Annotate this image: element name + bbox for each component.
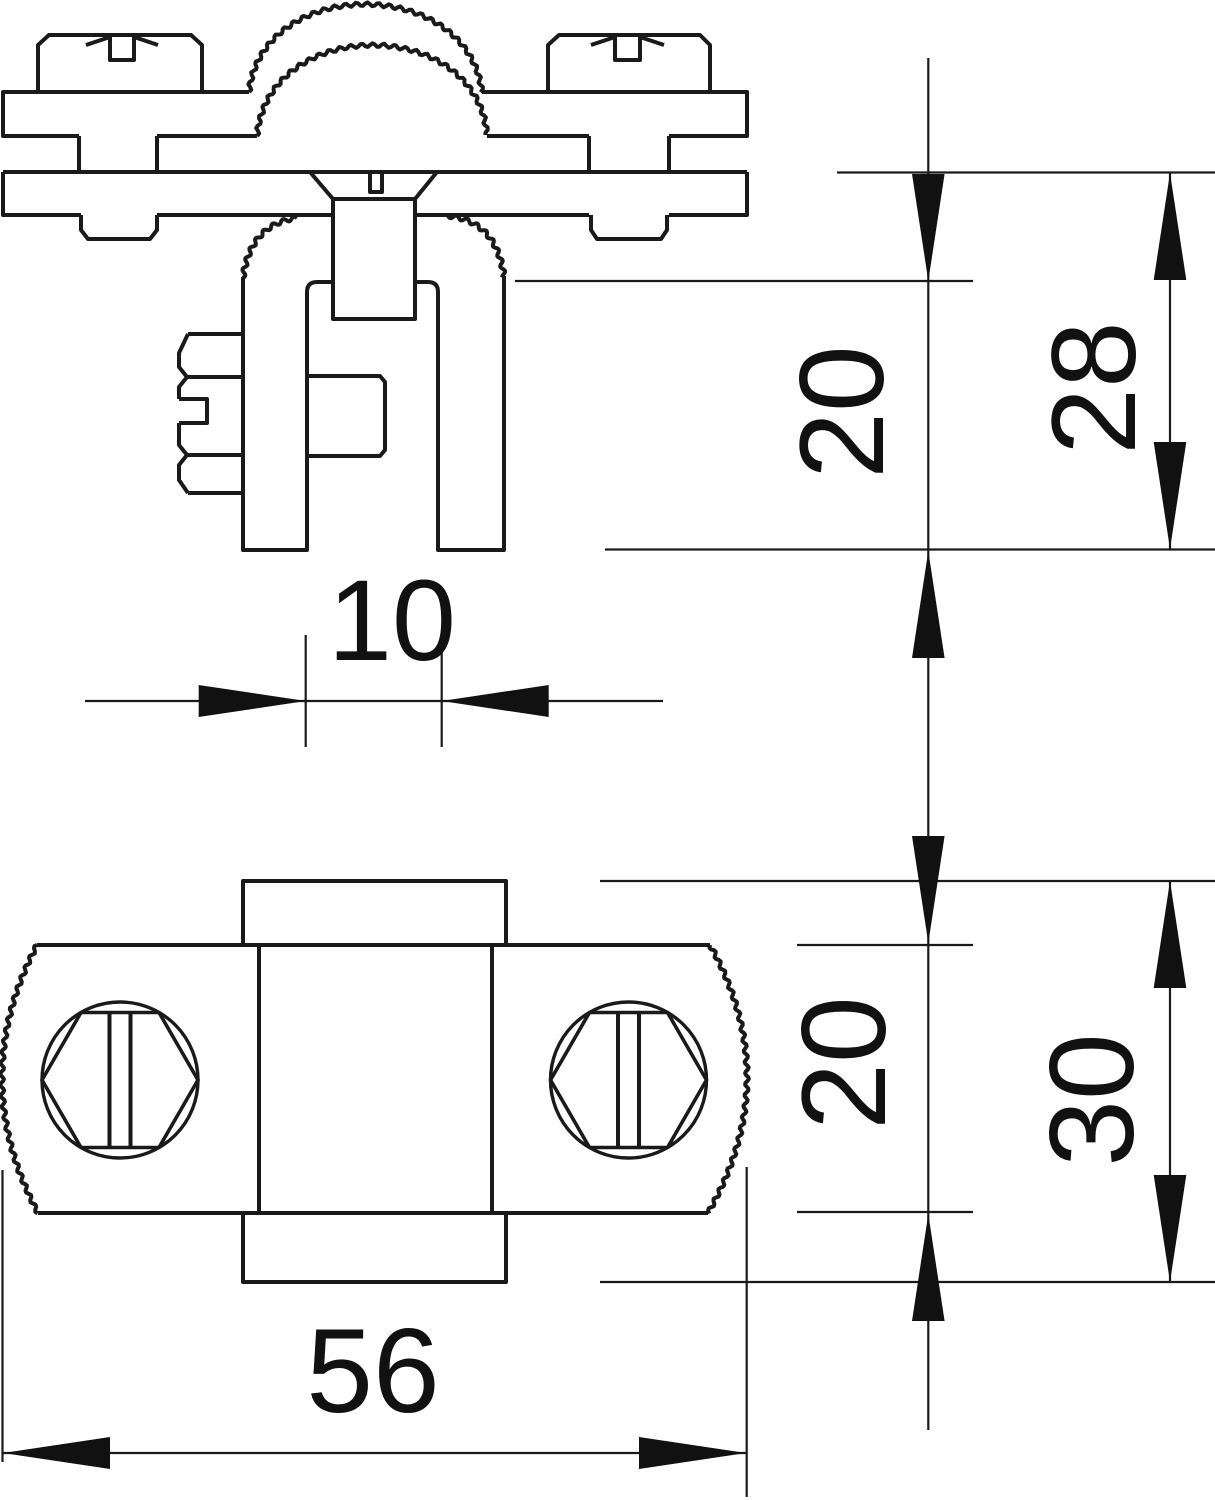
plan-view bbox=[0, 881, 749, 1282]
fork-left-shoulder bbox=[243, 217, 298, 279]
top-tab bbox=[243, 881, 506, 945]
dim-label-10: 10 bbox=[328, 557, 456, 685]
hex-bolt bbox=[179, 334, 385, 493]
dim-label-20-front: 20 bbox=[775, 345, 909, 478]
center-channel bbox=[259, 945, 492, 1213]
dimension-lines bbox=[3, 58, 1215, 1497]
front-view bbox=[3, 2, 747, 550]
saddle-inner-edge bbox=[256, 43, 488, 136]
clevis-fork bbox=[243, 215, 506, 550]
bottom-tab bbox=[243, 1213, 506, 1282]
dim-label-28: 28 bbox=[1027, 321, 1161, 454]
hex-bolt-thread-tip bbox=[307, 376, 385, 456]
dim-label-30: 30 bbox=[1025, 1033, 1159, 1166]
body-left-knurled-end bbox=[0, 945, 37, 1213]
drawing-svg: 10 20 28 20 30 56 bbox=[0, 0, 1215, 1500]
countersunk-screw bbox=[310, 172, 437, 319]
technical-drawing-canvas: 10 20 28 20 30 56 bbox=[0, 0, 1215, 1500]
clamp-body bbox=[0, 881, 749, 1282]
plan-left-hex-screw bbox=[42, 1002, 198, 1158]
saddle-strap bbox=[248, 2, 487, 136]
fork-right-shoulder bbox=[448, 215, 505, 277]
dim-label-56: 56 bbox=[306, 1304, 439, 1438]
body-right-knurled-end bbox=[708, 945, 749, 1214]
dim-label-20-plan: 20 bbox=[777, 996, 911, 1129]
upper-plate bbox=[3, 92, 747, 136]
plan-right-hex-screw bbox=[551, 1002, 707, 1158]
